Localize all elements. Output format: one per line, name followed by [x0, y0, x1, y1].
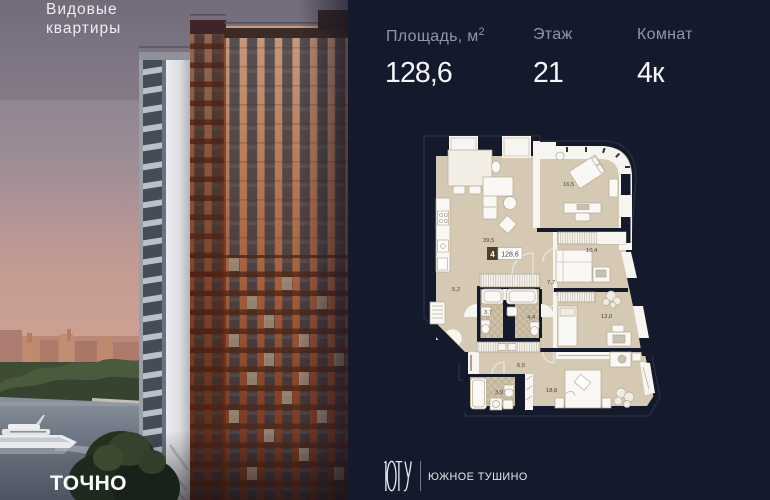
svg-text:16,5: 16,5	[563, 182, 574, 188]
svg-text:18,8: 18,8	[546, 388, 557, 394]
svg-text:4,4: 4,4	[527, 315, 536, 321]
svg-text:128,6: 128,6	[501, 252, 519, 259]
svg-text:10,4: 10,4	[586, 248, 598, 254]
svg-text:7,7: 7,7	[547, 280, 555, 286]
svg-text:3,7: 3,7	[484, 310, 492, 316]
svg-text:39,5: 39,5	[483, 238, 494, 244]
svg-text:3,9: 3,9	[495, 390, 503, 396]
svg-text:12,0: 12,0	[601, 314, 612, 320]
svg-text:5,2: 5,2	[452, 287, 460, 293]
svg-text:4: 4	[490, 250, 495, 259]
svg-text:6,5: 6,5	[517, 363, 525, 369]
